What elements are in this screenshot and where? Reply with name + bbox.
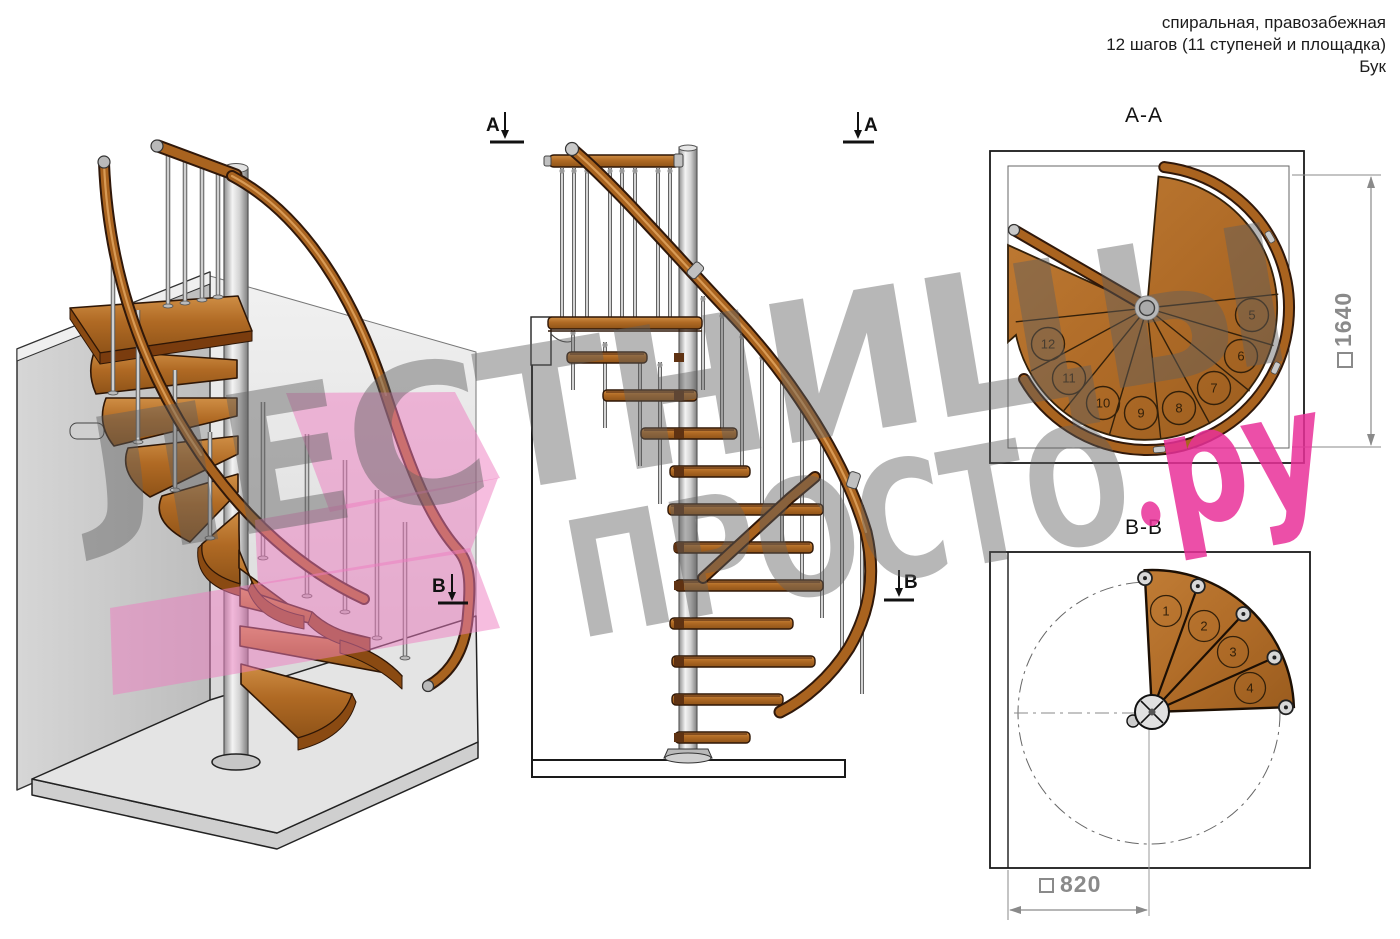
section-marker-b-right: B bbox=[884, 570, 918, 600]
svg-text:8: 8 bbox=[1175, 401, 1182, 416]
svg-text:3: 3 bbox=[1229, 645, 1236, 660]
stair-material: Бук bbox=[1106, 56, 1386, 78]
pole-cap bbox=[679, 145, 697, 151]
3d-perspective-view: B bbox=[17, 140, 500, 849]
marker-letter: A bbox=[864, 115, 878, 136]
marker-letter: A bbox=[486, 115, 500, 136]
section-marker-a-left: A bbox=[486, 112, 524, 142]
marker-letter: B bbox=[904, 572, 918, 593]
bb-dimension: 820 bbox=[1008, 870, 1148, 920]
svg-text:2: 2 bbox=[1200, 619, 1207, 634]
stair-steps-count: 12 шагов (11 ступеней и площадка) bbox=[1106, 34, 1386, 56]
svg-text:10: 10 bbox=[1096, 396, 1110, 411]
marker-letter: B bbox=[432, 576, 446, 597]
svg-text:4: 4 bbox=[1246, 681, 1253, 696]
pole-base-flange bbox=[665, 753, 711, 763]
plan-section-aa: A-A 56789101112 bbox=[990, 104, 1381, 463]
stair-type: спиральная, правозабежная bbox=[1106, 12, 1386, 34]
svg-text:7: 7 bbox=[1210, 381, 1217, 396]
svg-text:5: 5 bbox=[1248, 308, 1255, 323]
center-pole-top bbox=[1140, 301, 1155, 316]
svg-text:1: 1 bbox=[1162, 604, 1169, 619]
svg-text:9: 9 bbox=[1137, 406, 1144, 421]
wall-anchor bbox=[70, 423, 104, 439]
landing-elevation bbox=[548, 317, 702, 329]
view-title-bb: B-B bbox=[1125, 516, 1163, 539]
svg-text:12: 12 bbox=[1041, 337, 1055, 352]
aa-stair-plan: 56789101112 bbox=[1008, 167, 1289, 453]
landing-rail bbox=[544, 154, 683, 167]
pole-base-flange bbox=[212, 754, 260, 770]
bb-step-fan: 1234 bbox=[1127, 570, 1294, 729]
section-marker-a-right: A bbox=[843, 112, 878, 142]
square-symbol bbox=[1040, 879, 1053, 892]
drawing-sheet: B bbox=[0, 0, 1400, 939]
aa-dimension: 1640 bbox=[1292, 175, 1381, 447]
staircase-drawing: B bbox=[0, 0, 1400, 939]
elevation-view: A A B bbox=[486, 112, 918, 777]
bb-dimension-value: 820 bbox=[1060, 871, 1101, 897]
aa-dimension-value: 1640 bbox=[1330, 292, 1356, 347]
svg-text:6: 6 bbox=[1237, 349, 1244, 364]
view-title-aa: A-A bbox=[1125, 104, 1163, 127]
square-symbol bbox=[1338, 353, 1352, 367]
plan-section-bb: B-B 1234 820 bbox=[990, 516, 1310, 920]
svg-text:11: 11 bbox=[1062, 371, 1076, 386]
title-block: спиральная, правозабежная 12 шагов (11 с… bbox=[1106, 12, 1386, 78]
